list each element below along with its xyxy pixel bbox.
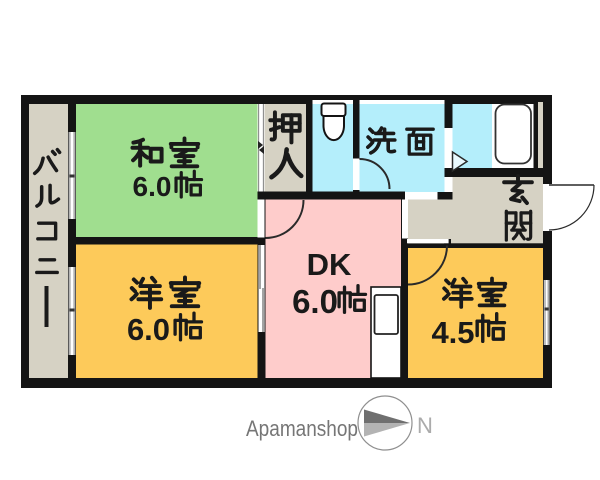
svg-text:6.0: 6.0: [292, 283, 338, 320]
svg-text:6.0: 6.0: [133, 171, 172, 202]
svg-text:4.5: 4.5: [431, 315, 474, 350]
svg-text:Apamanshop: Apamanshop: [246, 416, 358, 441]
svg-text:N: N: [417, 413, 433, 438]
svg-text:DK: DK: [307, 247, 352, 282]
svg-text:6.0: 6.0: [127, 312, 170, 347]
